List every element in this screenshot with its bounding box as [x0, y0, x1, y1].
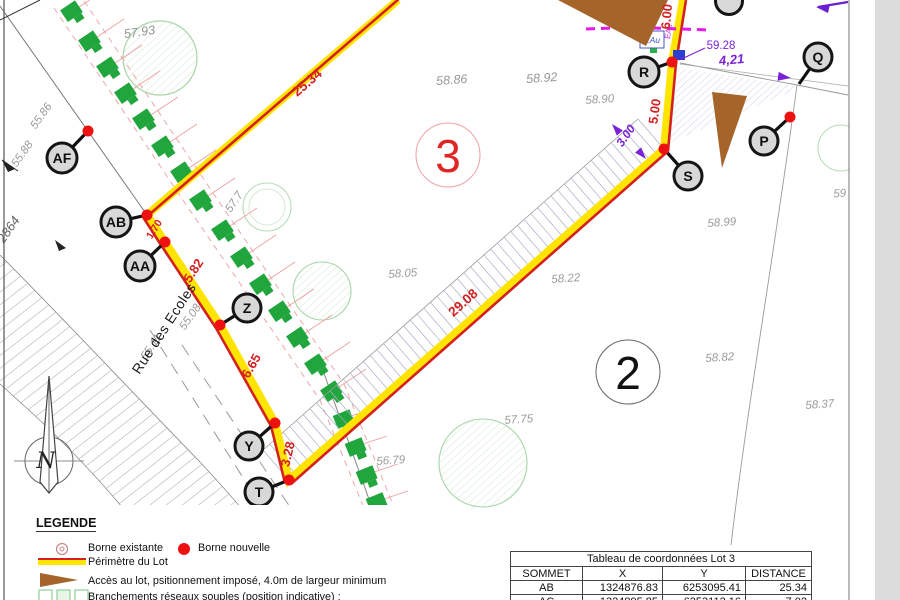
- purple-strip-width: 3.00: [613, 122, 638, 149]
- spot-height: 58.22: [551, 272, 581, 286]
- borne-nouvelle-icon: [176, 541, 192, 557]
- spot-height: 57.75: [504, 413, 534, 427]
- borne-nouvelle-dot: [160, 237, 171, 248]
- legend-acces: Accès au lot, psitionnement imposé, 4.0m…: [88, 575, 386, 587]
- perimetre-swatch: [38, 558, 86, 565]
- table-row: AC 1324895.85 6253112.16 7.02: [511, 595, 812, 600]
- vertex-letter-p: P: [759, 133, 768, 149]
- vertex-label-q: Q: [799, 43, 832, 84]
- table-header: SOMMET: [511, 567, 583, 581]
- frame-corner: [0, 0, 40, 20]
- borne-nouvelle-dot: [270, 418, 281, 429]
- network-square: [96, 56, 122, 83]
- spot-height: 58.86: [436, 72, 468, 88]
- borne-nouvelle-dot: [659, 144, 670, 155]
- borne-nouvelle-dot: [284, 475, 295, 486]
- vertex-letter-q: Q: [813, 49, 824, 65]
- table-header: DISTANCE: [746, 567, 812, 581]
- borne-existante-icon: [54, 541, 70, 557]
- lot3-number: 3: [435, 130, 461, 182]
- acces-arrow-icon: [40, 572, 82, 588]
- vertex-label-af: AF: [47, 126, 94, 174]
- outside-paper-area: [875, 0, 900, 600]
- vertex-letter-z: Z: [243, 300, 252, 316]
- borne-nouvelle-dot: [785, 112, 796, 123]
- spot-height: 58.99: [707, 216, 737, 230]
- dimension: 6.65: [238, 351, 264, 380]
- spot-height: 58.92: [526, 70, 558, 86]
- vertex-letter-af: AF: [53, 150, 72, 166]
- tree: [439, 419, 527, 507]
- vertex-label-p: P: [750, 112, 796, 156]
- network-square: [356, 465, 380, 490]
- coordinates-table: Tableau de coordonnées Lot 3 SOMMET X Y …: [510, 551, 812, 600]
- legend: LEGENDE Borne existante Borne nouvelle P…: [14, 505, 469, 600]
- vertex-label-z: Z: [215, 294, 262, 331]
- tree: [249, 189, 285, 225]
- spot-height: 55.86: [28, 101, 55, 132]
- site-plan-page: EAu EAc N 3 2 57.93 55.86 55.88 58.86 58…: [0, 0, 900, 600]
- legend-borne-nouvelle: Borne nouvelle: [198, 542, 270, 554]
- spot-height: 57.7: [223, 189, 246, 215]
- spot-height: 55.88: [9, 139, 36, 170]
- access-arrow-east: [712, 92, 747, 168]
- borne-nouvelle-dot: [142, 210, 153, 221]
- legend-borne-existante: Borne existante: [88, 542, 163, 554]
- dimension: 5.00: [645, 98, 663, 125]
- legend-branchements: Branchements réseaux souples (position i…: [88, 591, 341, 600]
- table-header: Y: [663, 567, 746, 581]
- network-square: [132, 108, 158, 135]
- network-square: [78, 30, 104, 57]
- borne-nouvelle-dot: [667, 57, 678, 68]
- table-title: Tableau de coordonnées Lot 3: [511, 552, 812, 567]
- table-header: X: [583, 567, 663, 581]
- network-square: [60, 0, 86, 27]
- vertex-label-cut: [716, 0, 743, 15]
- network-square: [268, 300, 294, 327]
- north-letter: N: [35, 449, 56, 474]
- vertex-letter-y: Y: [244, 438, 254, 454]
- branchements-icon: [38, 589, 94, 600]
- vertex-letter-ab: AB: [106, 214, 126, 230]
- spot-height: 59: [833, 188, 847, 201]
- table-row: AB 1324876.83 6253095.41 25.34: [511, 581, 812, 595]
- lot-perimeter: [143, 0, 686, 484]
- borne-nouvelle-dot: [215, 320, 226, 331]
- vertex-letter-s: S: [683, 168, 692, 184]
- vertex-letter-t: T: [255, 484, 264, 500]
- tree: [243, 183, 291, 231]
- purple-arrow-topright: [816, 2, 848, 13]
- spot-height: 56.79: [376, 454, 406, 468]
- network-square: [320, 380, 346, 407]
- purple-elevation: 59.28: [707, 40, 736, 52]
- spot-height: 58.82: [705, 351, 735, 365]
- vertex-label-aa: AA: [125, 237, 171, 282]
- lot2-number: 2: [615, 347, 641, 399]
- spot-height: 58.37: [805, 398, 835, 412]
- vertex-letter-aa: AA: [130, 258, 150, 274]
- vertex-letter-r: R: [639, 64, 649, 80]
- legend-title: LEGENDE: [36, 516, 96, 532]
- spot-height: 58.05: [388, 267, 418, 281]
- dimension: 6.00: [658, 3, 675, 30]
- vertex-label-t: T: [245, 475, 295, 507]
- purple-access-width: 4,21: [717, 51, 745, 68]
- network-square: [189, 189, 215, 216]
- network-square: [286, 326, 312, 353]
- vertex-label-s: S: [659, 144, 703, 191]
- legend-perimetre: Périmètre du Lot: [88, 556, 168, 568]
- spot-height: 58.90: [585, 93, 615, 107]
- tree: [293, 262, 351, 320]
- borne-nouvelle-dot: [83, 126, 94, 137]
